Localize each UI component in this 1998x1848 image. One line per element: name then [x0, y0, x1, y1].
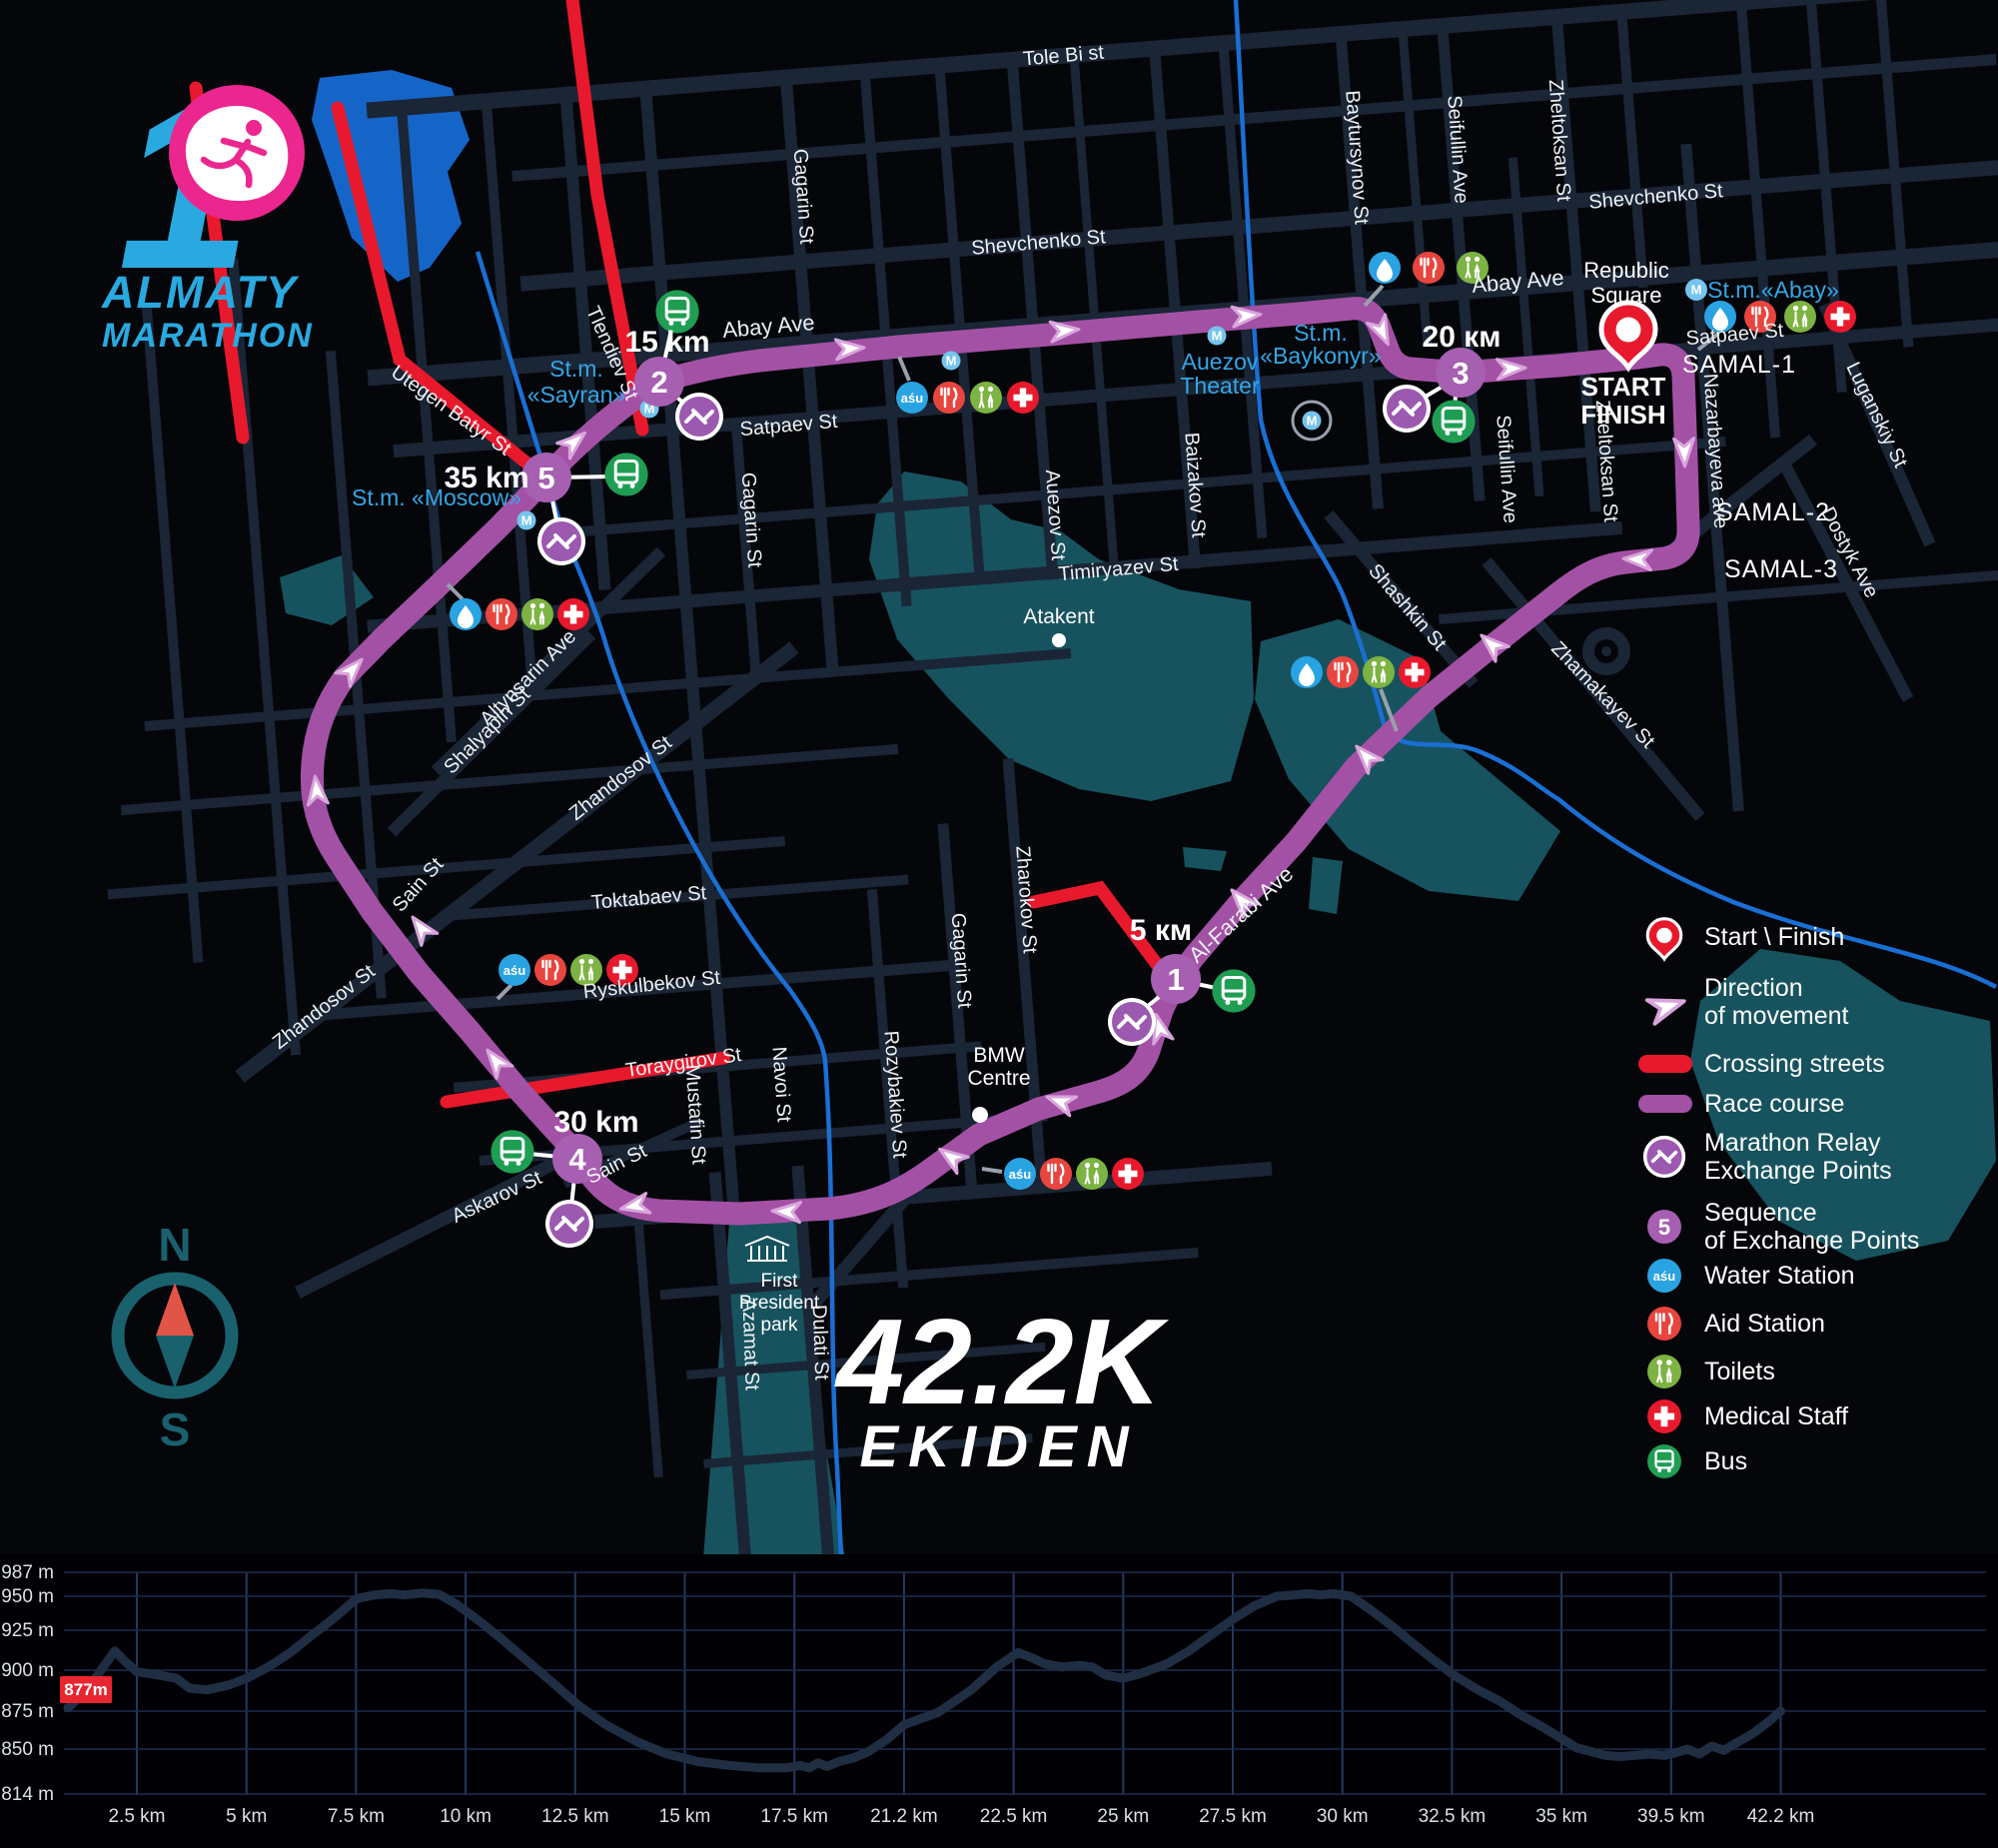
metro-icon: M — [1307, 414, 1318, 429]
legend-toilets: Toilets — [1704, 1358, 1775, 1386]
legend-bus-icon — [1647, 1444, 1681, 1478]
place-label-bmw: BMW — [973, 1044, 1025, 1067]
elevation-background — [0, 1554, 1998, 1848]
x-axis-tick-label: 42.2 km — [1747, 1806, 1815, 1827]
exchange-point-3: 3 — [1452, 356, 1469, 391]
place-label-samal2: SAMAL-2 — [1716, 498, 1830, 526]
legend-medical: Medical Staff — [1704, 1402, 1848, 1430]
metro-icon: M — [1212, 329, 1223, 344]
x-axis-tick-label: 35 km — [1535, 1806, 1587, 1827]
km-marker-20: 20 км — [1423, 321, 1501, 354]
y-axis-tick-label: 900 m — [1, 1660, 54, 1681]
svg-text:aśu: aśu — [1653, 1269, 1675, 1284]
x-axis-tick-label: 32.5 km — [1419, 1806, 1487, 1827]
bmw-dot — [972, 1107, 988, 1123]
legend-direction: Direction — [1704, 974, 1803, 1002]
legend-water-icon: aśu — [1647, 1259, 1681, 1293]
start-label: START — [1581, 372, 1666, 402]
legend-course: Race course — [1704, 1090, 1844, 1118]
place-label-samal3: SAMAL-3 — [1724, 555, 1838, 583]
legend-aid-icon — [1647, 1307, 1681, 1341]
station-label: St.m. — [549, 356, 603, 382]
station-label: St.m. «Moscow» — [352, 484, 521, 510]
legend-course-swatch — [1638, 1095, 1692, 1113]
asu-label: aśu — [1009, 1167, 1031, 1182]
republic-square-label: Republic — [1583, 258, 1669, 283]
legend-sequence: of Exchange Points — [1704, 1227, 1919, 1255]
station-label: Theater — [1180, 373, 1260, 399]
legend-water: Water Station — [1704, 1262, 1855, 1290]
legend-toilets-icon — [1647, 1355, 1681, 1388]
station-label: St.m.«Abay» — [1707, 277, 1839, 303]
x-axis-tick-label: 17.5 km — [760, 1806, 828, 1827]
x-axis-tick-label: 5 km — [226, 1806, 267, 1827]
atakent-dot — [1052, 633, 1066, 647]
place-label-park: park — [761, 1315, 798, 1336]
km-marker-30: 30 km — [553, 1106, 638, 1139]
place-label-bmw: Centre — [967, 1067, 1030, 1090]
race-distance-title: 42.2K — [833, 1294, 1169, 1429]
asu-label: aśu — [503, 963, 525, 978]
y-axis-tick-label: 987 m — [1, 1562, 54, 1583]
metro-icon: M — [1691, 283, 1702, 298]
legend-direction: of movement — [1704, 1002, 1849, 1030]
x-axis-tick-label: 12.5 km — [541, 1806, 609, 1827]
y-axis-tick-label: 875 m — [1, 1701, 54, 1722]
start-elevation-value: 877m — [64, 1680, 107, 1699]
legend-crossing: Crossing streets — [1704, 1050, 1885, 1078]
legend-relay: Exchange Points — [1704, 1157, 1892, 1185]
race-name-title: EKIDEN — [859, 1414, 1138, 1479]
station-label: «Sayran» — [527, 382, 625, 408]
place-label-park: First — [761, 1271, 799, 1292]
y-axis-tick-label: 925 m — [1, 1620, 54, 1641]
compass-south-label: S — [160, 1403, 191, 1455]
compass-north-label: N — [158, 1219, 191, 1271]
y-axis-tick-label: 950 m — [1, 1586, 54, 1607]
logo-text-marathon: MARATHON — [102, 317, 314, 355]
x-axis-tick-label: 2.5 km — [108, 1806, 165, 1827]
place-label-samal1: SAMAL-1 — [1682, 351, 1796, 379]
station-label: «Baykonyr» — [1260, 343, 1381, 369]
x-axis-tick-label: 21.2 km — [870, 1806, 938, 1827]
x-axis-tick-label: 39.5 km — [1637, 1806, 1705, 1827]
street-label: Dulati St — [808, 1305, 833, 1382]
exchange-point-1: 1 — [1167, 962, 1184, 997]
finish-label: FINISH — [1580, 400, 1665, 430]
svg-text:5: 5 — [1658, 1215, 1670, 1240]
legend-bus: Bus — [1704, 1447, 1747, 1475]
legend-medical-icon — [1647, 1399, 1681, 1433]
y-axis-tick-label: 814 m — [1, 1784, 54, 1805]
km-marker-5: 5 км — [1130, 914, 1192, 947]
exchange-point-5: 5 — [537, 461, 554, 495]
place-label-atakent: Atakent — [1023, 605, 1094, 628]
station-label: Auezov — [1182, 349, 1259, 375]
place-label-park: President — [739, 1293, 820, 1314]
legend-crossing-swatch — [1638, 1055, 1692, 1073]
x-axis-tick-label: 10 km — [440, 1806, 492, 1827]
legend-aid: Aid Station — [1704, 1310, 1825, 1338]
x-axis-tick-label: 27.5 km — [1199, 1806, 1267, 1827]
asu-label: aśu — [901, 391, 923, 406]
km-marker-15: 15 km — [624, 326, 709, 359]
logo-text-almaty: ALMATY — [101, 267, 300, 318]
x-axis-tick-label: 7.5 km — [328, 1806, 385, 1827]
y-axis-tick-label: 850 m — [1, 1739, 54, 1760]
metro-icon: M — [521, 513, 532, 528]
almaty-marathon-course-map: aśu aśu aśu M M M M M M 1 — [0, 0, 1998, 1848]
legend-sequence-icon: 5 — [1647, 1210, 1681, 1244]
legend-relay-icon — [1643, 1136, 1685, 1178]
legend-sequence: Sequence — [1704, 1199, 1817, 1227]
x-axis-tick-label: 30 km — [1317, 1806, 1369, 1827]
legend-start-finish: Start \ Finish — [1704, 923, 1844, 951]
x-axis-tick-label: 15 km — [659, 1806, 711, 1827]
x-axis-tick-label: 22.5 km — [980, 1806, 1048, 1827]
exchange-point-2: 2 — [650, 365, 667, 400]
metro-icon: M — [946, 354, 957, 369]
x-axis-tick-label: 25 km — [1097, 1806, 1149, 1827]
legend-relay: Marathon Relay — [1704, 1129, 1881, 1157]
